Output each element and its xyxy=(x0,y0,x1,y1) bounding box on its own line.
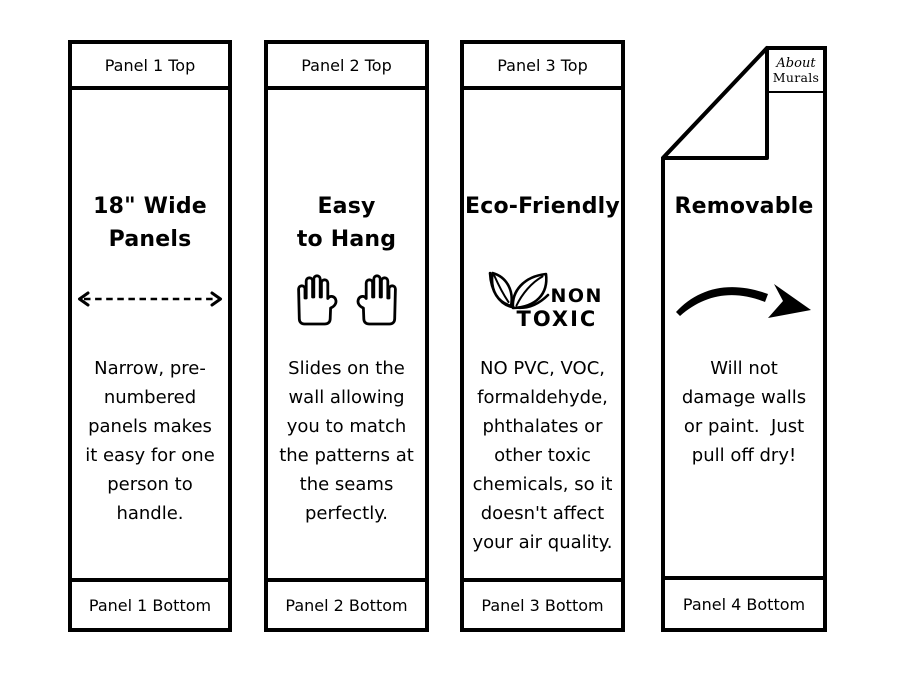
text-line: or paint. Just xyxy=(665,412,823,441)
text-line: doesn't affect xyxy=(464,499,621,528)
panel-1-icon-area xyxy=(72,264,228,334)
dashed-width-arrow-icon xyxy=(76,291,224,307)
folded-corner-flap xyxy=(663,48,767,158)
non-toxic-word-non: NON xyxy=(551,285,603,307)
text-line: NO PVC, VOC, xyxy=(464,354,621,383)
text-line: Panels xyxy=(72,223,228,256)
text-line: the seams xyxy=(268,470,425,499)
panel-3-top-band: Panel 3 Top xyxy=(464,44,621,90)
logo-word-murals: Murals xyxy=(773,71,820,85)
panel-3-body-text: NO PVC, VOC,formaldehyde,phthalates orot… xyxy=(464,354,621,557)
about-murals-logo: About Murals xyxy=(768,49,824,92)
text-line: numbered xyxy=(72,383,228,412)
panel-2-bottom-band: Panel 2 Bottom xyxy=(268,578,425,628)
panel-4-bottom-band: Panel 4 Bottom xyxy=(665,580,823,628)
text-line: your air quality. xyxy=(464,528,621,557)
panel-1: Panel 1 Top 18" WidePanels Narrow, pre-n… xyxy=(68,40,232,632)
panel-2-icon-area xyxy=(268,264,425,334)
text-line: Eco-Friendly xyxy=(464,190,621,223)
panel-4-bottom-label: Panel 4 Bottom xyxy=(683,595,805,614)
text-line: you to match xyxy=(268,412,425,441)
logo-word-about: About xyxy=(776,56,815,71)
panel-2-bottom-label: Panel 2 Bottom xyxy=(285,596,407,615)
text-line: Easy xyxy=(268,190,425,223)
non-toxic-mark: NON TOXIC xyxy=(477,264,609,334)
text-line: damage walls xyxy=(665,383,823,412)
panel-1-title: 18" WidePanels xyxy=(72,190,228,256)
panel-3-top-label: Panel 3 Top xyxy=(497,56,588,75)
text-line: Will not xyxy=(665,354,823,383)
text-line: wall allowing xyxy=(268,383,425,412)
text-line: formaldehyde, xyxy=(464,383,621,412)
text-line: it easy for one xyxy=(72,441,228,470)
text-line: person to xyxy=(72,470,228,499)
text-line: Slides on the xyxy=(268,354,425,383)
curved-arrow-icon xyxy=(673,276,815,324)
panel-4: About Murals Removable Will notdamage wa… xyxy=(661,40,827,632)
text-line: pull off dry! xyxy=(665,441,823,470)
text-line: Narrow, pre- xyxy=(72,354,228,383)
raised-hands-icons xyxy=(291,270,403,328)
panel-2-top-label: Panel 2 Top xyxy=(301,56,392,75)
panel-2: Panel 2 Top Easyto Hang Slides on thewal… xyxy=(264,40,429,632)
non-toxic-word-toxic: TOXIC xyxy=(517,307,598,331)
panel-4-icon-area xyxy=(661,272,827,328)
panel-2-body-text: Slides on thewall allowingyou to matchth… xyxy=(268,354,425,528)
panel-3-title: Eco-Friendly xyxy=(464,190,621,223)
folded-sheet-outline xyxy=(661,40,827,632)
panel-3-bottom-label: Panel 3 Bottom xyxy=(481,596,603,615)
text-line: to Hang xyxy=(268,223,425,256)
panel-3: Panel 3 Top Eco-Friendly NON TOXIC NO PV… xyxy=(460,40,625,632)
panel-2-title: Easyto Hang xyxy=(268,190,425,256)
text-line: Removable xyxy=(661,190,827,223)
panel-4-body-text: Will notdamage wallsor paint. Justpull o… xyxy=(665,354,823,470)
text-line: 18" Wide xyxy=(72,190,228,223)
text-line: other toxic xyxy=(464,441,621,470)
wallpaper-panels-infographic: Panel 1 Top 18" WidePanels Narrow, pre-n… xyxy=(0,0,900,675)
panel-3-icon-area: NON TOXIC xyxy=(464,264,621,334)
panel-2-top-band: Panel 2 Top xyxy=(268,44,425,90)
panel-1-top-label: Panel 1 Top xyxy=(105,56,196,75)
panel-1-body-text: Narrow, pre-numberedpanels makesit easy … xyxy=(72,354,228,528)
panel-1-bottom-band: Panel 1 Bottom xyxy=(72,578,228,628)
raised-hand-left-icon xyxy=(291,270,339,328)
panel-3-bottom-band: Panel 3 Bottom xyxy=(464,578,621,628)
raised-hand-right-icon xyxy=(355,270,403,328)
text-line: the patterns at xyxy=(268,441,425,470)
leaves-icon xyxy=(483,266,553,312)
panel-1-top-band: Panel 1 Top xyxy=(72,44,228,90)
text-line: chemicals, so it xyxy=(464,470,621,499)
panel-4-title: Removable xyxy=(661,190,827,223)
panel-1-bottom-label: Panel 1 Bottom xyxy=(89,596,211,615)
text-line: panels makes xyxy=(72,412,228,441)
text-line: perfectly. xyxy=(268,499,425,528)
text-line: handle. xyxy=(72,499,228,528)
text-line: phthalates or xyxy=(464,412,621,441)
